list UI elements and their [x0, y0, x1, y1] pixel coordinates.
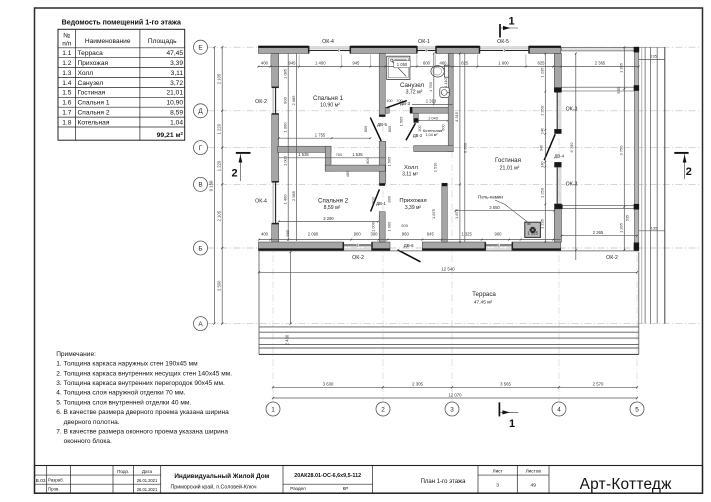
svg-text:1 235: 1 235: [539, 218, 544, 229]
svg-text:ОК-5: ОК-5: [497, 39, 509, 45]
svg-text:945: 945: [289, 60, 297, 65]
svg-text:1.8: 1.8: [62, 119, 71, 126]
svg-text:1 395: 1 395: [619, 63, 624, 73]
svg-text:3 550: 3 550: [489, 205, 500, 210]
svg-text:ОК-2: ОК-2: [606, 255, 618, 261]
svg-text:Е: Е: [198, 45, 202, 52]
svg-text:Площадь: Площадь: [148, 38, 177, 45]
svg-text:А: А: [198, 321, 203, 328]
svg-text:8,59 м²: 8,59 м²: [324, 205, 341, 211]
svg-text:3,39: 3,39: [170, 60, 183, 67]
svg-text:135: 135: [650, 54, 657, 59]
svg-text:1.1: 1.1: [62, 50, 71, 57]
svg-text:Индивидуальный Жилой Дом: Индивидуальный Жилой Дом: [174, 472, 269, 480]
svg-text:Санузел: Санузел: [78, 80, 104, 87]
svg-text:12 540: 12 540: [441, 267, 455, 272]
svg-text:Холл: Холл: [78, 70, 94, 77]
svg-text:1 050: 1 050: [397, 62, 408, 67]
svg-text:Санузел: Санузел: [400, 82, 424, 89]
svg-text:800: 800: [370, 196, 375, 203]
svg-text:1 000: 1 000: [387, 221, 392, 232]
svg-text:Наименование: Наименование: [85, 38, 131, 45]
svg-text:460: 460: [440, 60, 448, 65]
svg-text:1: 1: [509, 418, 515, 430]
svg-text:135: 135: [651, 226, 658, 231]
svg-text:700: 700: [396, 99, 402, 103]
svg-text:1.3: 1.3: [62, 70, 71, 77]
svg-text:1 535: 1 535: [352, 152, 363, 157]
svg-text:Терраса: Терраса: [78, 50, 104, 57]
svg-text:2: 2: [381, 406, 385, 413]
svg-text:205: 205: [401, 223, 408, 228]
svg-text:2 570: 2 570: [593, 382, 604, 387]
svg-text:700: 700: [336, 152, 343, 157]
svg-text:4: 4: [557, 406, 561, 413]
svg-text:20АК28.01-ОС-6,6х9,5-112: 20АК28.01-ОС-6,6х9,5-112: [294, 473, 361, 479]
svg-text:1 535: 1 535: [298, 152, 309, 157]
svg-text:3,11 м²: 3,11 м²: [402, 172, 418, 178]
svg-text:Пров.: Пров.: [48, 487, 60, 492]
svg-text:900: 900: [354, 231, 362, 236]
svg-text:2 365: 2 365: [595, 60, 606, 65]
svg-text:1.5: 1.5: [62, 90, 71, 97]
svg-text:8,59: 8,59: [170, 110, 183, 117]
svg-text:2 500: 2 500: [216, 280, 221, 291]
svg-text:940: 940: [540, 145, 544, 151]
svg-text:1 400: 1 400: [283, 194, 288, 205]
svg-text:3 630: 3 630: [323, 382, 334, 387]
svg-text:3,72 м²: 3,72 м²: [406, 89, 423, 95]
svg-text:1 250: 1 250: [539, 187, 544, 198]
svg-text:3,39 м²: 3,39 м²: [405, 205, 422, 211]
svg-text:26.01.2021: 26.01.2021: [137, 487, 158, 492]
svg-text:1 600: 1 600: [498, 60, 509, 65]
svg-text:Печь-камин: Печь-камин: [478, 194, 503, 199]
svg-text:1.2: 1.2: [62, 60, 71, 67]
svg-text:3 290: 3 290: [323, 216, 334, 221]
svg-text:945: 945: [352, 60, 360, 65]
svg-text:ОК-1: ОК-1: [418, 39, 430, 45]
svg-text:800: 800: [363, 125, 368, 132]
svg-text:3: 3: [496, 483, 499, 489]
svg-text:Котельная: Котельная: [423, 128, 442, 133]
svg-text:План 1-го этажа: План 1-го этажа: [421, 479, 466, 485]
svg-text:800: 800: [387, 125, 392, 132]
svg-text:1 325: 1 325: [528, 231, 539, 236]
svg-text:2 365: 2 365: [593, 230, 604, 235]
svg-text:Терраса: Терраса: [472, 291, 496, 298]
svg-text:1.7: 1.7: [62, 110, 71, 117]
svg-text:600: 600: [423, 60, 431, 65]
svg-text:В.03: В.03: [36, 478, 46, 484]
svg-text:Г: Г: [199, 145, 203, 152]
svg-text:ДВ-1: ДВ-1: [376, 201, 386, 206]
svg-text:4 315: 4 315: [454, 111, 459, 122]
svg-text:1 110: 1 110: [443, 77, 448, 87]
svg-text:1 875: 1 875: [454, 208, 459, 219]
svg-text:3: 3: [450, 406, 454, 413]
svg-text:900: 900: [283, 96, 288, 103]
svg-text:1 220: 1 220: [216, 160, 221, 171]
svg-text:485: 485: [345, 171, 350, 178]
svg-text:100: 100: [386, 99, 392, 103]
svg-text:10,90 м²: 10,90 м²: [320, 103, 340, 109]
svg-text:535: 535: [626, 215, 630, 221]
svg-text:1: 1: [271, 406, 275, 413]
svg-text:2 090: 2 090: [308, 231, 319, 236]
svg-text:6. В качестве размера дверного: 6. В качестве размера дверного проема ук…: [56, 409, 229, 416]
svg-text:1 220: 1 220: [216, 123, 221, 134]
svg-text:Прихожая: Прихожая: [399, 198, 426, 204]
svg-text:КР: КР: [343, 486, 349, 491]
svg-text:1 765: 1 765: [428, 82, 433, 92]
svg-text:Раздел: Раздел: [290, 486, 306, 491]
svg-text:2. Толщина каркаса внутренних: 2. Толщина каркаса внутренних несущих ст…: [56, 370, 232, 377]
svg-text:1 505: 1 505: [387, 157, 392, 167]
svg-text:1: 1: [508, 16, 514, 28]
svg-text:6 790: 6 790: [569, 142, 574, 153]
svg-text:1 235: 1 235: [539, 67, 544, 78]
svg-text:ОК-2: ОК-2: [352, 255, 364, 261]
svg-text:Спальня 1: Спальня 1: [78, 100, 110, 107]
svg-text:400: 400: [261, 60, 269, 65]
svg-text:5: 5: [635, 406, 639, 413]
svg-text:Примечание:: Примечание:: [56, 351, 96, 358]
svg-text:1 250: 1 250: [539, 105, 544, 116]
svg-text:№: №: [63, 33, 70, 40]
svg-text:1 000: 1 000: [283, 122, 288, 133]
svg-text:Листов: Листов: [526, 469, 542, 474]
svg-text:В: В: [198, 182, 202, 189]
svg-text:800: 800: [365, 156, 370, 163]
svg-text:9 150: 9 150: [209, 180, 214, 191]
svg-text:5. Толщина слоя внутренней отд: 5. Толщина слоя внутренней отделки 40 мм…: [56, 398, 191, 406]
svg-text:оконного блока.: оконного блока.: [64, 437, 112, 445]
svg-text:2: 2: [686, 166, 692, 178]
svg-text:2 985: 2 985: [291, 95, 296, 106]
svg-text:ОК-4: ОК-4: [255, 199, 267, 205]
svg-text:ОК-2: ОК-2: [255, 99, 267, 105]
svg-text:Разраб.: Разраб.: [48, 478, 64, 483]
svg-text:800: 800: [387, 195, 392, 202]
svg-text:ДВ-2: ДВ-2: [413, 133, 423, 138]
svg-text:21,01: 21,01: [166, 90, 183, 97]
svg-text:Холл: Холл: [404, 165, 418, 171]
svg-text:400: 400: [261, 231, 269, 236]
svg-text:99,21 м2: 99,21 м2: [157, 131, 184, 139]
svg-text:21,01 м²: 21,01 м²: [500, 165, 520, 171]
svg-text:1 510: 1 510: [433, 162, 438, 173]
svg-text:825: 825: [538, 60, 546, 65]
svg-text:п/п: п/п: [62, 40, 71, 47]
svg-text:ДВ-6: ДВ-6: [404, 243, 414, 248]
svg-text:1 040: 1 040: [428, 116, 439, 121]
svg-text:Арт-Коттедж: Арт-Коттедж: [580, 476, 672, 493]
svg-text:Подп.: Подп.: [117, 469, 129, 474]
svg-text:6 390: 6 390: [463, 142, 468, 153]
svg-text:Приморский край, п.Соловей-Клю: Приморский край, п.Соловей-Ключ: [170, 484, 256, 491]
svg-text:1,04 м²: 1,04 м²: [425, 133, 438, 137]
svg-text:Гостиная: Гостиная: [78, 90, 106, 97]
svg-text:Дата: Дата: [142, 469, 153, 474]
svg-text:3 750: 3 750: [619, 145, 624, 156]
svg-text:140: 140: [540, 128, 544, 134]
svg-text:1 000: 1 000: [283, 155, 288, 166]
svg-text:ДВ-4: ДВ-4: [554, 154, 564, 159]
svg-text:26.01.2021: 26.01.2021: [137, 478, 158, 483]
svg-text:3,72: 3,72: [170, 80, 183, 87]
svg-text:1 400: 1 400: [315, 60, 326, 65]
svg-text:1.6: 1.6: [62, 100, 71, 107]
svg-text:2 105: 2 105: [216, 210, 221, 221]
svg-text:300: 300: [418, 125, 422, 131]
svg-text:1.4: 1.4: [62, 80, 71, 87]
svg-text:2 985: 2 985: [291, 190, 296, 201]
svg-text:2 430: 2 430: [285, 334, 290, 345]
svg-text:960: 960: [402, 231, 410, 236]
svg-text:Гостиная: Гостиная: [495, 157, 521, 164]
svg-text:47,45: 47,45: [166, 50, 183, 57]
svg-text:535: 535: [617, 87, 621, 93]
svg-text:1 755: 1 755: [315, 132, 326, 137]
svg-text:2 305: 2 305: [412, 382, 423, 387]
svg-text:Лист: Лист: [493, 469, 504, 474]
svg-text:Спальня 2: Спальня 2: [78, 110, 110, 117]
svg-text:2: 2: [232, 168, 238, 180]
svg-text:10,90: 10,90: [166, 100, 183, 107]
svg-text:585: 585: [285, 230, 290, 237]
svg-text:600: 600: [442, 124, 446, 130]
svg-text:140: 140: [540, 161, 544, 167]
svg-text:Прихожая: Прихожая: [78, 60, 109, 67]
svg-text:Д: Д: [198, 108, 203, 115]
svg-text:1,04: 1,04: [170, 119, 183, 126]
svg-text:1 875: 1 875: [431, 208, 436, 219]
svg-text:3 565: 3 565: [500, 382, 511, 387]
svg-text:3. Толщина каркаса внутренних: 3. Толщина каркаса внутренних перегородо…: [56, 380, 225, 387]
svg-text:1 310: 1 310: [426, 99, 437, 104]
svg-text:Б: Б: [198, 245, 202, 252]
svg-text:1 085: 1 085: [283, 68, 288, 79]
svg-text:1 325: 1 325: [461, 231, 472, 236]
svg-text:7. В качестве размера оконного: 7. В качестве размера оконного проема ук…: [56, 429, 228, 436]
svg-text:1 000: 1 000: [370, 221, 375, 232]
svg-text:Ведомость помещений 1-го этажа: Ведомость помещений 1-го этажа: [62, 18, 181, 26]
svg-text:ОК-4: ОК-4: [322, 39, 334, 45]
svg-text:дверного полотна.: дверного полотна.: [64, 419, 120, 426]
svg-text:1 395: 1 395: [619, 223, 624, 233]
svg-text:1 505: 1 505: [399, 117, 404, 127]
svg-text:49: 49: [530, 483, 536, 489]
svg-text:Спальня 1: Спальня 1: [313, 95, 344, 102]
svg-text:645: 645: [427, 231, 435, 236]
svg-text:900: 900: [495, 231, 503, 236]
svg-text:3,11: 3,11: [171, 70, 184, 77]
svg-text:2 105: 2 105: [216, 73, 221, 84]
svg-text:1. Толщина каркаса наружных ст: 1. Толщина каркаса наружных стен 190х45 …: [56, 361, 198, 368]
svg-text:Котельная: Котельная: [78, 119, 110, 126]
svg-text:4. Толщина слоя наружной отдел: 4. Толщина слоя наружной отделки 70 мм.: [56, 389, 185, 397]
svg-text:Спальня 2: Спальня 2: [318, 198, 349, 205]
svg-text:47,45 м²: 47,45 м²: [474, 299, 493, 305]
svg-text:12 070: 12 070: [448, 392, 462, 397]
